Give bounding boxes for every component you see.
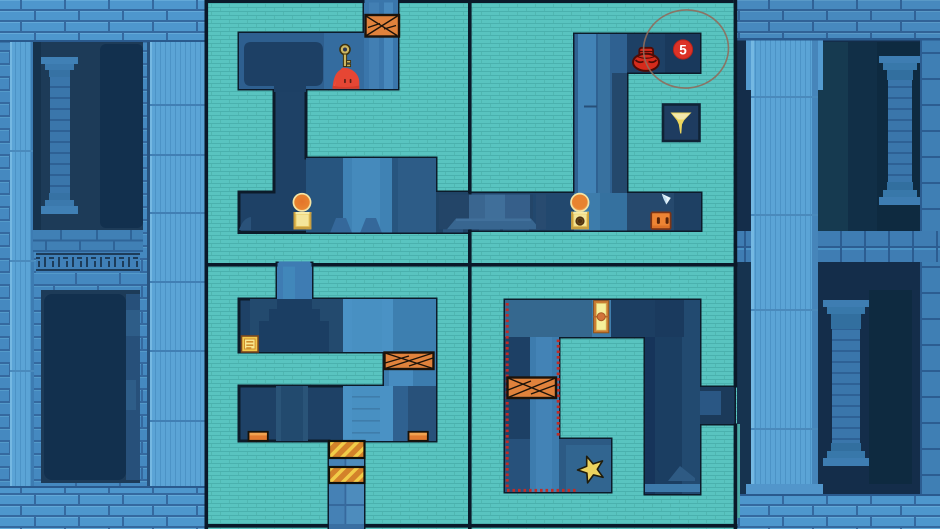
svg-text:5: 5 <box>679 42 687 57</box>
